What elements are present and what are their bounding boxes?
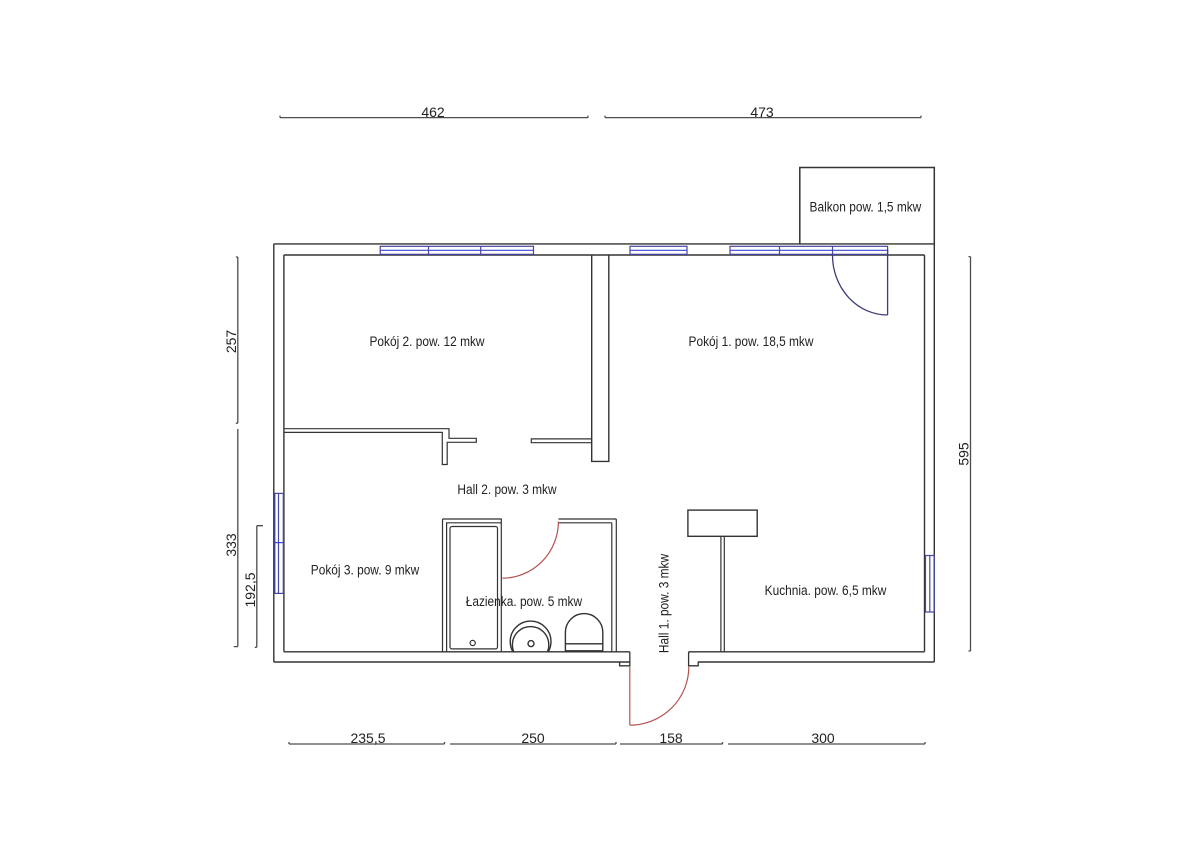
svg-text:Balkon pow. 1,5 mkw: Balkon pow. 1,5 mkw [810,199,922,215]
svg-text:Kuchnia. pow. 6,5 mkw: Kuchnia. pow. 6,5 mkw [765,582,887,598]
svg-text:158: 158 [659,730,683,746]
svg-text:235,5: 235,5 [350,730,385,746]
svg-text:192,5: 192,5 [242,572,258,607]
svg-text:Hall 2. pow. 3 mkw: Hall 2. pow. 3 mkw [457,481,557,497]
svg-text:333: 333 [223,533,239,557]
svg-text:595: 595 [956,442,972,466]
svg-text:Hall 1. pow. 3 mkw: Hall 1. pow. 3 mkw [656,553,672,653]
svg-text:Łazienka. pow. 5 mkw: Łazienka. pow. 5 mkw [466,593,583,609]
svg-text:257: 257 [223,330,239,354]
svg-text:Pokój 1. pow. 18,5 mkw: Pokój 1. pow. 18,5 mkw [689,333,815,349]
svg-text:473: 473 [750,104,774,120]
svg-text:250: 250 [521,730,545,746]
svg-text:Pokój 2. pow. 12 mkw: Pokój 2. pow. 12 mkw [369,333,485,349]
svg-text:300: 300 [811,730,835,746]
svg-text:Pokój 3. pow. 9 mkw: Pokój 3. pow. 9 mkw [311,562,420,578]
svg-text:462: 462 [421,104,445,120]
